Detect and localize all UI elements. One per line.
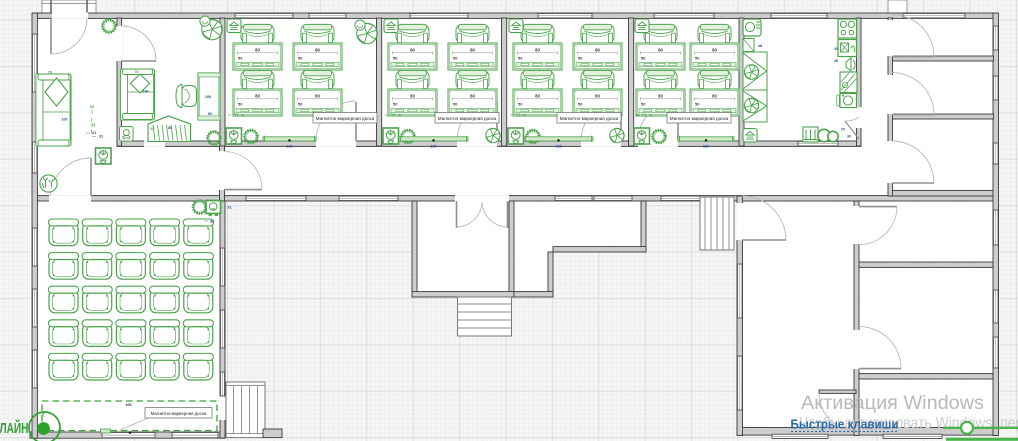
svg-text:45: 45 bbox=[834, 59, 838, 63]
svg-text:70: 70 bbox=[48, 69, 53, 74]
svg-text:33: 33 bbox=[234, 113, 239, 118]
svg-text:Магнитно-маркерная доска: Магнитно-маркерная доска bbox=[670, 116, 729, 121]
svg-text:30: 30 bbox=[847, 135, 851, 139]
svg-text:400: 400 bbox=[125, 403, 131, 407]
svg-text:20: 20 bbox=[841, 128, 845, 132]
svg-text:33: 33 bbox=[516, 113, 521, 118]
svg-text:31: 31 bbox=[227, 205, 232, 210]
svg-text:33: 33 bbox=[210, 219, 215, 224]
svg-text:120: 120 bbox=[286, 145, 292, 149]
svg-text:33: 33 bbox=[391, 113, 396, 118]
svg-text:120: 120 bbox=[430, 145, 436, 149]
svg-text:31: 31 bbox=[99, 134, 104, 139]
svg-text:45: 45 bbox=[834, 47, 838, 51]
svg-text:120: 120 bbox=[703, 145, 709, 149]
svg-text:Активация Windows: Активация Windows bbox=[801, 392, 984, 414]
svg-text:70: 70 bbox=[42, 413, 46, 417]
svg-text:Быстрые клавиши: Быстрые клавиши bbox=[791, 416, 899, 431]
svg-text:100: 100 bbox=[62, 118, 68, 122]
svg-text:45: 45 bbox=[150, 127, 154, 131]
svg-text:Магнитно-маркерная доска: Магнитно-маркерная доска bbox=[438, 116, 497, 121]
svg-text:190: 190 bbox=[143, 90, 149, 94]
svg-text:ЛАЙН: ЛАЙН bbox=[0, 419, 29, 437]
svg-text:120: 120 bbox=[555, 145, 561, 149]
svg-text:Магнитно-маркерная доска: Магнитно-маркерная доска bbox=[560, 116, 619, 121]
svg-text:Магнитно-маркерная доска: Магнитно-маркерная доска bbox=[151, 411, 207, 416]
svg-text:70: 70 bbox=[134, 69, 138, 74]
svg-text:Магнитно-маркерная доска: Магнитно-маркерная доска bbox=[316, 116, 375, 121]
svg-text:33: 33 bbox=[90, 104, 95, 109]
svg-text:48: 48 bbox=[758, 44, 762, 48]
svg-text:80: 80 bbox=[168, 126, 172, 130]
svg-text:33: 33 bbox=[642, 113, 647, 118]
svg-text:80: 80 bbox=[208, 112, 212, 116]
svg-text:100: 100 bbox=[205, 95, 211, 99]
svg-text:33: 33 bbox=[91, 123, 96, 128]
svg-text:31: 31 bbox=[92, 130, 97, 135]
